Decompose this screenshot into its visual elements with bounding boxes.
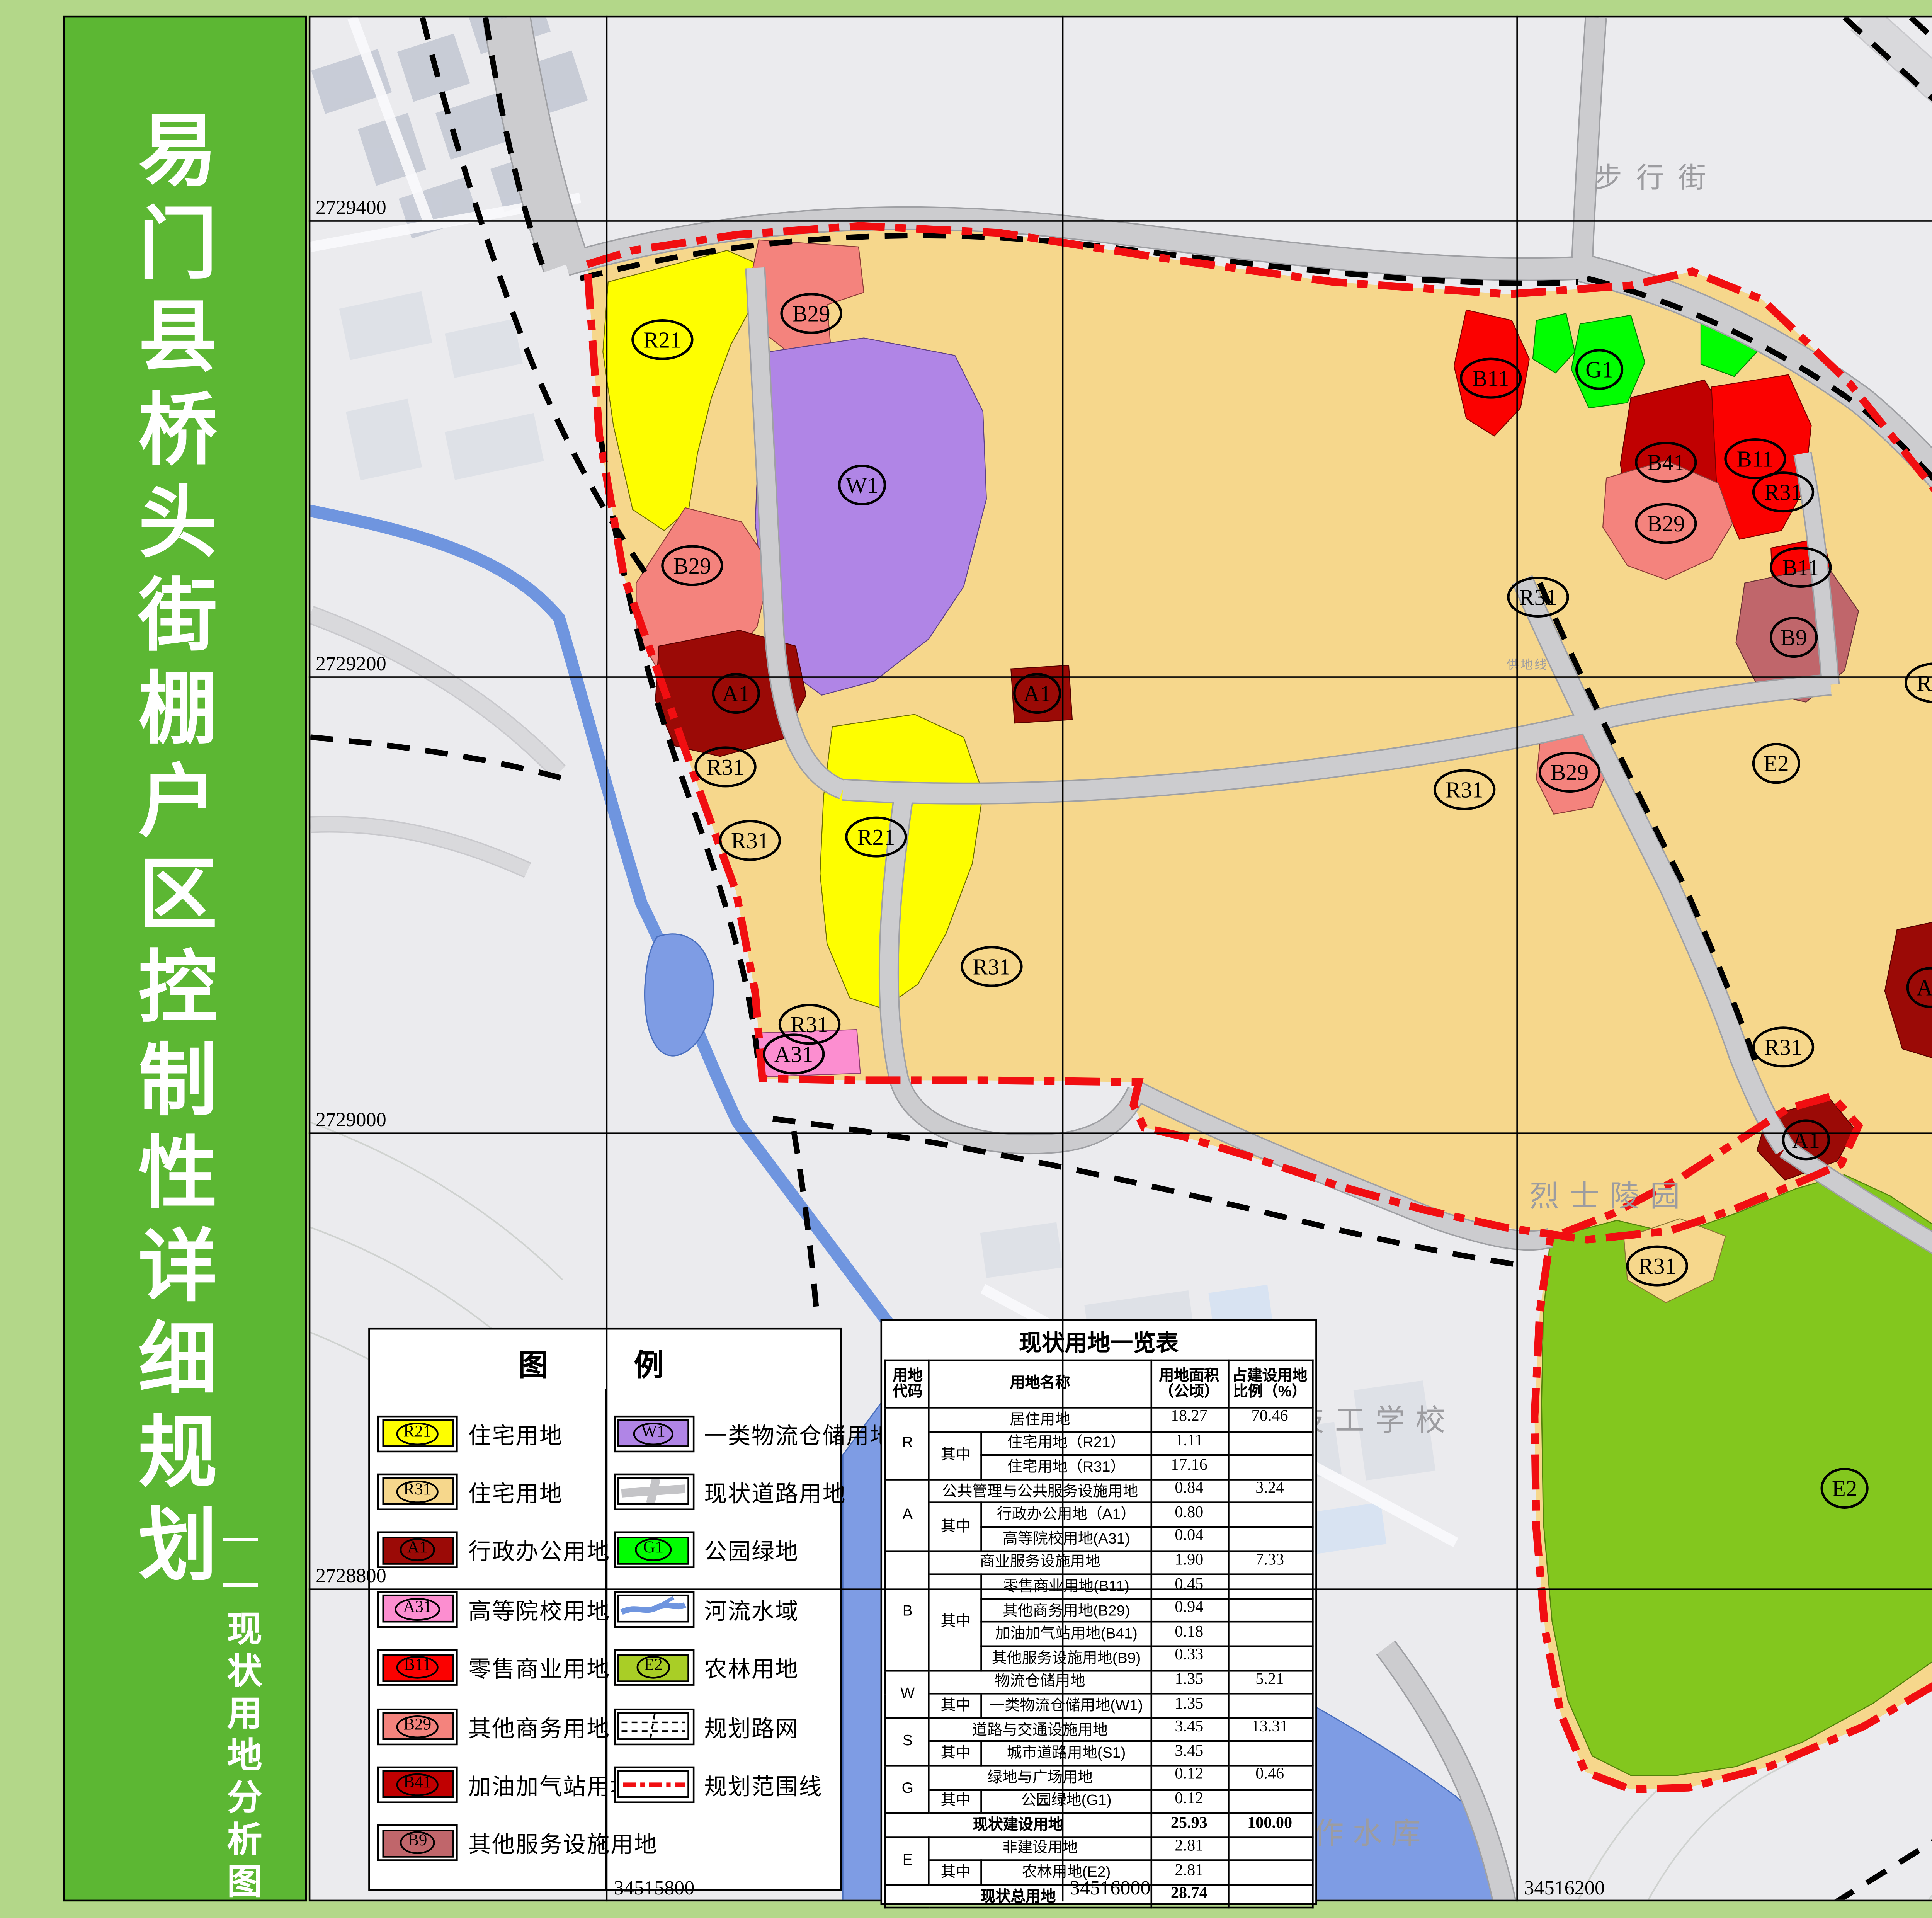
legend-code: B29 [396,1715,439,1738]
cell-area: 0.18 [1151,1622,1228,1646]
table-row: 其中行政办公用地（A1）0.80 [886,1503,1312,1527]
legend-swatch: B11 [377,1649,458,1686]
legend-item-label: 零售商业用地 [468,1651,611,1684]
zone-code-label: B11 [1472,366,1509,391]
zone-code-label: E2 [1832,1476,1857,1501]
legend-code: R31 [396,1480,439,1503]
legend-item: W1 一类物流仓储用地 [613,1407,893,1459]
cell-pct [1228,1455,1312,1479]
zone-e2-farmland [1542,1175,1932,1775]
zone-code-label: B29 [673,553,711,579]
cell-name: 高等院校用地(A31) [982,1527,1151,1551]
cell-code: B [886,1551,929,1670]
table-row: B商业服务设施用地1.907.33 [886,1551,1312,1575]
legend-item-label: 公园绿地 [704,1533,799,1567]
legend-item: R31 住宅用地 [377,1465,563,1518]
cell-name: 其他服务设施用地(B9) [982,1646,1151,1670]
legend-code: B41 [396,1773,439,1796]
legend-code: E2 [636,1656,670,1679]
legend-swatch: R21 [377,1415,458,1452]
legend-item-label: 农林用地 [704,1651,799,1684]
cell-zhong: 其中 [930,1694,982,1718]
legend-swatch: A31 [377,1590,458,1627]
cell-area: 1.90 [1151,1551,1228,1575]
legend-item: G1 公园绿地 [613,1524,799,1576]
table-row: E非建设用地2.81 [886,1837,1312,1861]
cell-pct [1228,1694,1312,1718]
map-place-label: 供地线 [1507,658,1549,672]
cell-pct: 70.46 [1228,1407,1312,1431]
cell-name: 加油加气站用地(B41) [982,1622,1151,1646]
zone-code-label: R31 [1519,585,1557,610]
legend-swatch [613,1473,694,1510]
cell-pct [1228,1741,1312,1765]
legend-item-label: 现状道路用地 [704,1475,846,1508]
table-row: S道路与交通设施用地3.4513.31 [886,1718,1312,1742]
table-row: A公共管理与公共服务设施用地0.843.24 [886,1479,1312,1503]
zone-code-label: R31 [1446,778,1483,803]
cell-area: 3.45 [1151,1718,1228,1742]
legend-item: E2 农林用地 [613,1641,799,1694]
cell-name: 居住用地 [930,1407,1151,1431]
legend-item-label: 行政办公用地 [468,1533,611,1567]
cell-name: 商业服务设施用地 [930,1551,1151,1575]
zone-code-label: B29 [1551,760,1588,785]
col-pct: 占建设用地 比例（%） [1228,1360,1312,1408]
zone-code-label: R31 [973,954,1010,979]
cell-name: 公园绿地(G1) [982,1789,1151,1813]
cell-pct [1228,1598,1312,1622]
legend-swatch: E2 [613,1649,694,1686]
table-row: 现状总用地28.74 [886,1884,1312,1908]
legend-swatch [613,1590,694,1627]
cell-pct [1228,1574,1312,1598]
cell-area: 1.11 [1151,1431,1228,1455]
table-row: W物流仓储用地1.355.21 [886,1670,1312,1694]
cell-area: 25.93 [1151,1813,1228,1837]
sub-title: ——现状用地分析图 [216,1519,267,1905]
zone-code-label: B11 [1782,555,1819,580]
table-header-row: 用地 代码 用地名称 用地面积 （公顷） 占建设用地 比例（%） [886,1360,1312,1408]
cell-area: 0.33 [1151,1646,1228,1670]
legend-swatch: B29 [377,1708,458,1744]
cell-pct: 7.33 [1228,1551,1312,1575]
cell-zhong: 其中 [930,1431,982,1479]
legend-code: G1 [635,1539,672,1562]
zone-code-label: R31 [1764,1035,1802,1060]
cell-pct: 5.21 [1228,1670,1312,1694]
cell-pct [1228,1622,1312,1646]
cell-name: 现状建设用地 [886,1813,1150,1837]
zone-code-label: W1 [846,473,879,498]
cell-zhong: 其中 [930,1503,982,1550]
cell-area: 0.12 [1151,1789,1228,1813]
zone-code-label: B29 [793,301,830,326]
main-title: 易门县桥头街棚户区控制性详细规划 [131,109,210,1596]
legend-item: 规划路网 [613,1700,799,1752]
legend-item-label: 其他商务用地 [468,1709,611,1743]
cell-pct [1228,1884,1312,1908]
cell-area: 0.04 [1151,1527,1228,1551]
cell-pct [1228,1503,1312,1527]
map-place-label: 步行街 [1594,162,1720,194]
table-title: 现状用地一览表 [882,1324,1315,1358]
table-row: 其中城市道路用地(S1)3.45 [886,1741,1312,1765]
cell-area: 1.35 [1151,1670,1228,1694]
zone-code-label: R21 [857,825,895,850]
cell-area: 2.81 [1151,1837,1228,1861]
legend-code: B11 [396,1656,439,1679]
legend-title: 图 例 [370,1340,840,1384]
cell-code: G [886,1765,929,1813]
legend-item-label: 住宅用地 [468,1416,563,1450]
zone-code-label: R31 [1917,671,1932,696]
cell-area: 0.45 [1151,1574,1228,1598]
legend-item: 规划范围线 [613,1758,822,1811]
zone-code-label: E2 [1764,751,1789,776]
legend-item: A31 高等院校用地 [377,1583,611,1635]
legend-box: 图 例 R21 住宅用地 R31 住宅用地 A1 行政办公用地 A31 高等院校… [368,1328,842,1891]
cell-area: 1.35 [1151,1694,1228,1718]
cell-pct [1228,1837,1312,1861]
table-row: 其中零售商业用地(B11)0.45 [886,1574,1312,1598]
cell-name: 住宅用地（R21） [982,1431,1151,1455]
cell-area: 0.80 [1151,1503,1228,1527]
cell-name: 绿地与广场用地 [930,1765,1151,1789]
cell-pct: 13.31 [1228,1718,1312,1742]
zone-code-label: A1 [1792,1128,1820,1153]
legend-code: A1 [399,1539,435,1562]
title-sidebar: 易门县桥头街棚户区控制性详细规划 ——现状用地分析图 [63,16,307,1901]
cell-pct: 0.46 [1228,1765,1312,1789]
zone-code-label: R31 [731,828,769,853]
zone-code-label: A31 [774,1042,813,1067]
cell-pct [1228,1431,1312,1455]
zone-code-label: R31 [706,755,744,780]
cell-area: 17.16 [1151,1455,1228,1479]
table-row: 现状建设用地25.93100.00 [886,1813,1312,1837]
legend-item-label: 河流水域 [704,1592,799,1625]
cell-area: 0.84 [1151,1479,1228,1503]
cell-name: 公共管理与公共服务设施用地 [930,1479,1151,1503]
table-row: R居住用地18.2770.46 [886,1407,1312,1431]
legend-item: A1 行政办公用地 [377,1524,611,1576]
cell-zhong: 其中 [930,1574,982,1670]
zone-code-label: R31 [791,1012,828,1037]
plan-sheet: 易门县桥头街棚户区控制性详细规划 ——现状用地分析图 [0,0,1932,1917]
legend-code: B9 [400,1832,435,1855]
legend-item: B29 其他商务用地 [377,1700,611,1752]
cell-code: E [886,1837,929,1884]
cell-name: 物流仓储用地 [930,1670,1151,1694]
cell-pct: 100.00 [1228,1813,1312,1837]
cell-pct: 3.24 [1228,1479,1312,1503]
cell-pct [1228,1861,1312,1885]
cell-area: 2.81 [1151,1861,1228,1885]
legend-item-label: 一类物流仓储用地 [704,1416,893,1450]
cell-code: W [886,1670,929,1717]
cell-area: 0.94 [1151,1598,1228,1622]
legend-item: R21 住宅用地 [377,1407,563,1459]
zone-code-label: B41 [1647,450,1685,475]
cell-name: 零售商业用地(B11) [982,1574,1151,1598]
cell-name: 农林用地(E2) [982,1861,1151,1885]
cell-area: 18.27 [1151,1407,1228,1431]
legend-swatch: G1 [613,1532,694,1569]
legend-swatch [613,1708,694,1744]
zone-code-label: A1 [1023,681,1051,706]
table-row: 其中农林用地(E2)2.81 [886,1861,1312,1885]
zone-code-label: A1 [722,681,750,706]
cell-name: 一类物流仓储用地(W1) [982,1694,1151,1718]
zone-code-label: R31 [1638,1254,1676,1279]
legend-item: B11 零售商业用地 [377,1641,611,1694]
cell-area: 3.45 [1151,1741,1228,1765]
col-area: 用地面积 （公顷） [1151,1360,1228,1408]
cell-area: 0.12 [1151,1765,1228,1789]
cell-pct [1228,1646,1312,1670]
map-place-label: 技工学校 [1295,1404,1456,1437]
legend-swatch: B41 [377,1766,458,1803]
zone-code-label: B29 [1647,511,1685,536]
table-row: 其中公园绿地(G1)0.12 [886,1789,1312,1813]
col-name: 用地名称 [930,1360,1151,1408]
legend-swatch: W1 [613,1415,694,1452]
table-row: 其中住宅用地（R21）1.11 [886,1431,1312,1455]
table-row: G绿地与广场用地0.120.46 [886,1765,1312,1789]
cell-code: S [886,1718,929,1765]
col-code: 用地 代码 [886,1360,929,1408]
cell-pct [1228,1527,1312,1551]
cell-area: 28.74 [1151,1884,1228,1908]
legend-item: 河流水域 [613,1583,799,1635]
zone-code-label: R31 [1764,480,1802,505]
legend-code: R21 [396,1422,439,1445]
legend-swatch: A1 [377,1532,458,1569]
legend-item: 现状道路用地 [613,1465,846,1518]
table-row: 其中一类物流仓储用地(W1)1.35 [886,1694,1312,1718]
cell-zhong: 其中 [930,1789,982,1813]
legend-swatch: R31 [377,1473,458,1510]
zone-code-label: R21 [643,327,681,352]
cell-code: R [886,1407,929,1479]
map-place-label: 烈士陵园 [1529,1180,1690,1213]
cell-zhong: 其中 [930,1741,982,1765]
legend-item: B41 加油加气站用地 [377,1758,634,1811]
cell-name: 道路与交通设施用地 [930,1718,1151,1742]
legend-swatch [613,1766,694,1803]
cell-pct [1228,1789,1312,1813]
cell-zhong: 其中 [930,1861,982,1885]
cell-name: 其他商务用地(B29) [982,1598,1151,1622]
zone-code-label: A1 [1917,975,1932,1001]
legend-item-label: 住宅用地 [468,1475,563,1508]
cell-name: 现状总用地 [886,1884,1150,1908]
legend-item-label: 规划路网 [704,1709,799,1743]
legend-item-label: 高等院校用地 [468,1592,611,1625]
zone-code-label: B9 [1781,625,1807,650]
landuse-table: 用地 代码 用地名称 用地面积 （公顷） 占建设用地 比例（%） R居住用地18… [885,1360,1313,1909]
legend-code: A31 [395,1598,440,1620]
legend-item-label: 规划范围线 [704,1768,822,1801]
legend-code: W1 [633,1422,673,1445]
cell-name: 非建设用地 [930,1837,1151,1861]
zone-code-label: B11 [1736,446,1774,471]
cell-code: A [886,1479,929,1551]
legend-swatch: B9 [377,1825,458,1862]
cell-name: 行政办公用地（A1） [982,1503,1151,1527]
landuse-table-box: 现状用地一览表 用地 代码 用地名称 用地面积 （公顷） 占建设用地 比例（%）… [881,1319,1317,1905]
cell-name: 城市道路用地(S1) [982,1741,1151,1765]
cell-name: 住宅用地（R31） [982,1455,1151,1479]
zone-code-label: G1 [1585,357,1613,382]
map-place-label: 作水库 [1314,1817,1429,1850]
